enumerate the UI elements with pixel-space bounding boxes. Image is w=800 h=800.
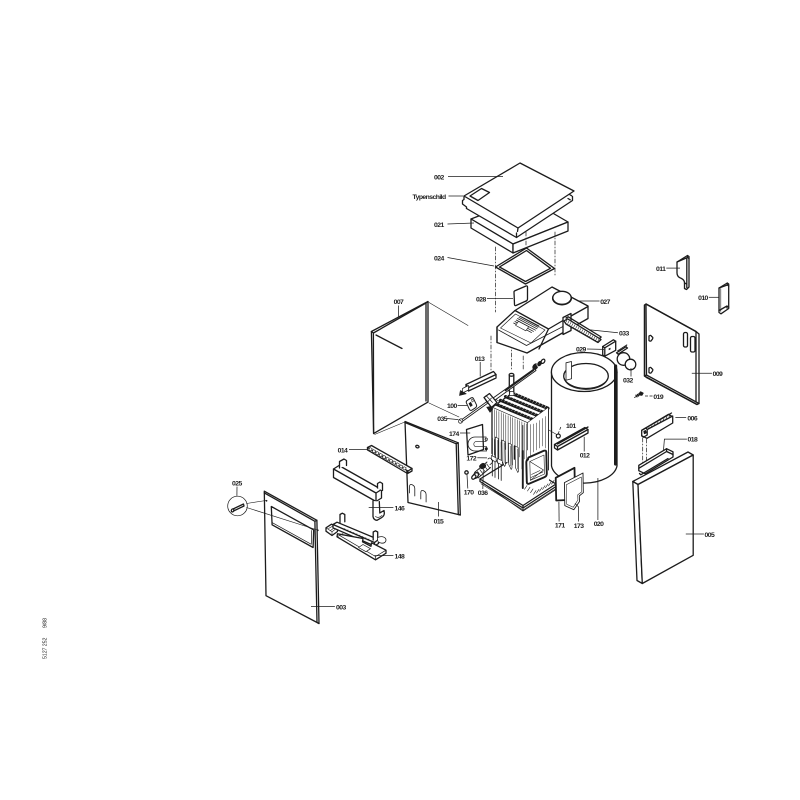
svg-text:018: 018	[688, 437, 698, 444]
svg-text:025: 025	[232, 480, 242, 487]
svg-text:100: 100	[447, 403, 457, 410]
svg-text:012: 012	[580, 452, 590, 459]
svg-text:006: 006	[687, 415, 697, 422]
svg-text:101: 101	[566, 423, 576, 430]
svg-text:033: 033	[619, 331, 629, 338]
svg-text:170: 170	[464, 490, 474, 497]
svg-text:036: 036	[478, 490, 488, 497]
svg-text:Typenschild: Typenschild	[413, 194, 446, 201]
svg-text:014: 014	[338, 447, 348, 454]
svg-text:005: 005	[705, 532, 715, 539]
svg-text:015: 015	[434, 518, 444, 525]
svg-text:032: 032	[623, 377, 633, 384]
svg-text:5127 252: 5127 252	[43, 638, 49, 659]
svg-text:010: 010	[698, 295, 708, 302]
svg-text:019: 019	[653, 394, 663, 401]
svg-text:172: 172	[466, 455, 476, 462]
svg-text:171: 171	[555, 522, 565, 529]
svg-text:174: 174	[449, 431, 459, 438]
svg-text:020: 020	[594, 521, 604, 528]
svg-text:013: 013	[475, 356, 485, 363]
svg-text:009: 009	[713, 371, 723, 378]
svg-text:024: 024	[434, 256, 444, 263]
svg-text:028: 028	[476, 296, 486, 303]
svg-text:148: 148	[395, 553, 405, 560]
svg-text:173: 173	[574, 523, 584, 530]
svg-text:027: 027	[600, 299, 610, 306]
svg-text:9/88: 9/88	[43, 618, 49, 628]
svg-text:029: 029	[576, 347, 586, 354]
svg-text:002: 002	[434, 175, 444, 182]
svg-text:003: 003	[336, 604, 346, 611]
svg-text:021: 021	[434, 222, 444, 229]
svg-text:011: 011	[656, 266, 666, 273]
svg-text:007: 007	[394, 299, 404, 306]
svg-text:146: 146	[395, 505, 405, 512]
svg-text:035: 035	[437, 416, 447, 423]
